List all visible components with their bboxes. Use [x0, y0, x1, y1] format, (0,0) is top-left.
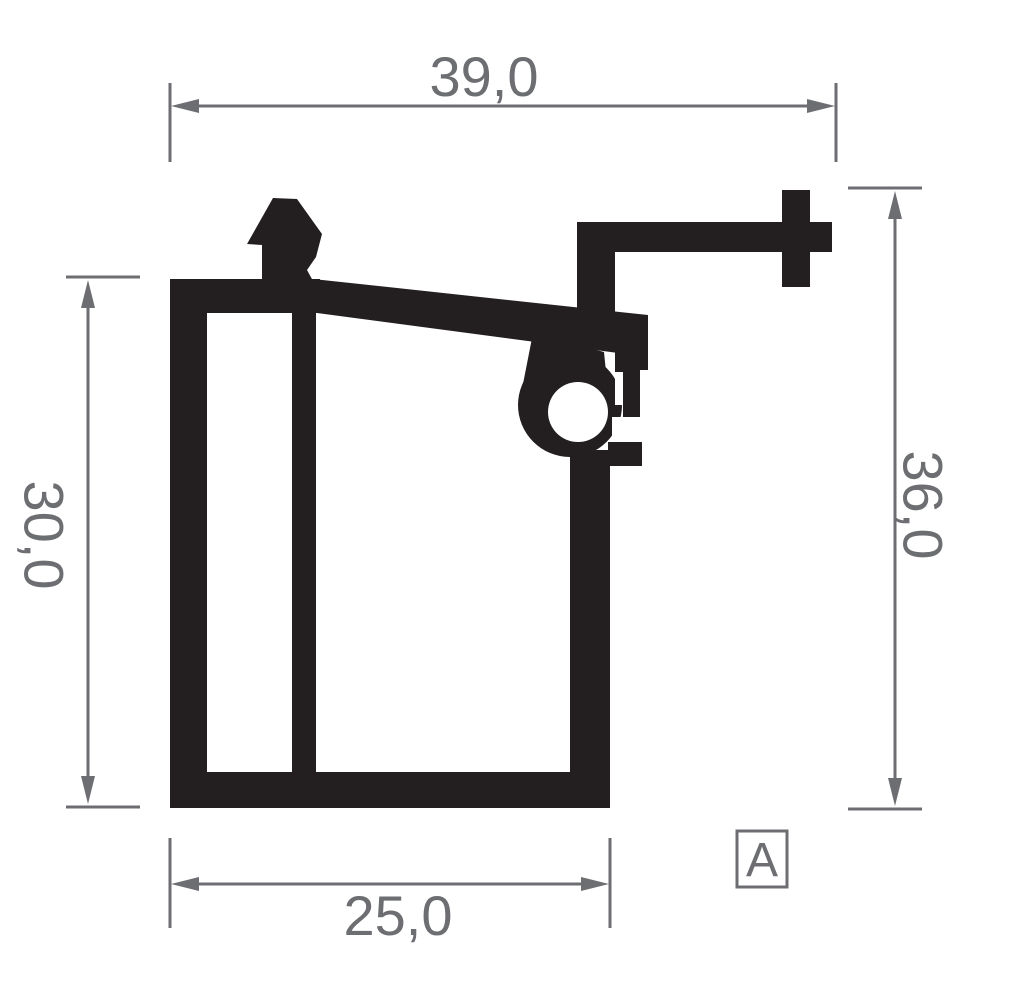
- dimension-right: 36,0: [848, 188, 955, 809]
- profile-hook-lip: [608, 442, 642, 466]
- arrow-left-icon: [171, 99, 199, 113]
- profile-cross-section: [170, 190, 832, 808]
- arrow-up-icon: [888, 191, 902, 219]
- profile-arrow-rib: [247, 198, 322, 281]
- arrow-left-icon: [171, 877, 199, 891]
- dimension-bottom: 25,0: [170, 838, 610, 947]
- dimension-label-left: 30,0: [13, 481, 76, 590]
- profile-left-wall: [170, 279, 207, 808]
- section-label: A: [737, 831, 787, 887]
- dimension-label-top: 39,0: [430, 45, 539, 108]
- profile-divider-wall: [292, 279, 316, 772]
- hook-slot-cutout: [615, 372, 623, 405]
- dimension-label-right: 36,0: [892, 451, 955, 560]
- technical-drawing: 39,0 30,0 36,0 25,0 A: [0, 0, 1025, 998]
- arrow-down-icon: [81, 776, 95, 804]
- section-label-text: A: [746, 834, 778, 887]
- drawing-canvas: 39,0 30,0 36,0 25,0 A: [0, 0, 1025, 998]
- arrow-right-icon: [807, 99, 835, 113]
- arrow-up-icon: [81, 280, 95, 308]
- arrow-down-icon: [888, 778, 902, 806]
- dimension-label-bottom: 25,0: [344, 884, 453, 947]
- profile-cross-tab: [782, 190, 810, 287]
- dimension-top: 39,0: [170, 45, 836, 162]
- profile-bottom-wall: [170, 772, 610, 808]
- profile-right-wall: [570, 450, 610, 772]
- dimension-left: 30,0: [13, 277, 141, 807]
- hook-channel-cutout: [548, 382, 608, 442]
- arrow-right-icon: [581, 877, 609, 891]
- hook-opening-cutout: [612, 417, 667, 442]
